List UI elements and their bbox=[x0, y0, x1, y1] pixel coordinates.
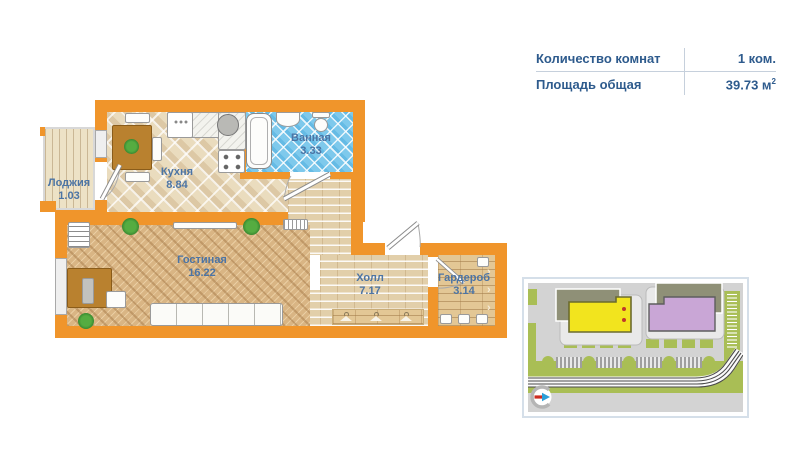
stove-icon bbox=[218, 150, 245, 173]
kitchen-sink-icon bbox=[217, 114, 239, 136]
hanger-icon bbox=[400, 312, 412, 322]
apartment-info-panel: Количество комнат 1 ком. Площадь общая 3… bbox=[536, 46, 776, 97]
pavement bbox=[528, 393, 743, 412]
bath-sink-icon bbox=[276, 112, 300, 127]
plant-icon bbox=[78, 313, 94, 329]
plant-icon bbox=[124, 139, 139, 154]
room-label-wardrobe: Гардероб3.14 bbox=[438, 272, 490, 298]
plant-icon bbox=[122, 218, 139, 235]
plant-icon bbox=[243, 218, 260, 235]
total-area-value: 39.73 м2 bbox=[726, 77, 776, 92]
storage-box-icon bbox=[458, 314, 470, 324]
entrance-door-opening bbox=[385, 243, 420, 255]
room-label-kitchen: Кухня8.84 bbox=[161, 166, 193, 192]
loggia-door-opening bbox=[95, 162, 107, 200]
site-map-thumbnail bbox=[522, 277, 749, 418]
wardrobe-chevron-icon: › bbox=[487, 303, 491, 313]
room-label-hall: Холл7.17 bbox=[356, 272, 384, 298]
rooms-count-value: 1 ком. bbox=[738, 51, 776, 66]
hanger-icon bbox=[370, 312, 382, 322]
pc-tower-icon bbox=[82, 278, 94, 304]
window-sill-shelf bbox=[173, 222, 237, 229]
radiator-icon bbox=[283, 219, 308, 230]
room-label-living: Гостиная16.22 bbox=[177, 254, 227, 280]
info-column-divider bbox=[684, 48, 685, 95]
bathroom-door-opening bbox=[290, 172, 330, 179]
room-label-bathroom: Ванная3.33 bbox=[291, 132, 331, 158]
chair bbox=[125, 113, 150, 123]
desk-chair bbox=[106, 291, 126, 308]
washing-machine-icon bbox=[167, 112, 193, 138]
site-map-graphic bbox=[528, 283, 743, 412]
bathtub-inner bbox=[250, 117, 268, 165]
bathtub-icon bbox=[246, 113, 272, 169]
compass-icon bbox=[532, 387, 551, 407]
bookshelf bbox=[68, 222, 90, 248]
hanger-icon bbox=[340, 312, 352, 322]
storage-box-icon bbox=[476, 314, 488, 324]
wall-segment bbox=[40, 127, 45, 136]
info-row-rooms: Количество комнат 1 ком. bbox=[536, 46, 776, 71]
entrance-dot bbox=[622, 307, 626, 311]
info-row-area: Площадь общая 39.73 м2 bbox=[536, 71, 776, 97]
living-passage-opening bbox=[310, 255, 320, 290]
entrance-dot bbox=[622, 318, 626, 322]
living-window bbox=[55, 258, 67, 315]
highlighted-building bbox=[569, 297, 631, 332]
room-label-loggia: Лоджия1.03 bbox=[48, 177, 90, 203]
storage-box-icon bbox=[440, 314, 452, 324]
rooms-count-label: Количество комнат bbox=[536, 51, 661, 66]
sofa bbox=[150, 303, 283, 326]
chair bbox=[152, 137, 162, 161]
chair bbox=[125, 172, 150, 182]
floor-plan: › › › Лоджия1.03 Кухня8.84 Ванн bbox=[40, 95, 510, 340]
wardrobe-door-opening bbox=[428, 257, 438, 287]
area-superscript: 2 bbox=[772, 77, 776, 86]
total-area-label: Площадь общая bbox=[536, 77, 642, 92]
kitchen-window bbox=[95, 130, 107, 158]
toilet-icon bbox=[314, 118, 328, 132]
